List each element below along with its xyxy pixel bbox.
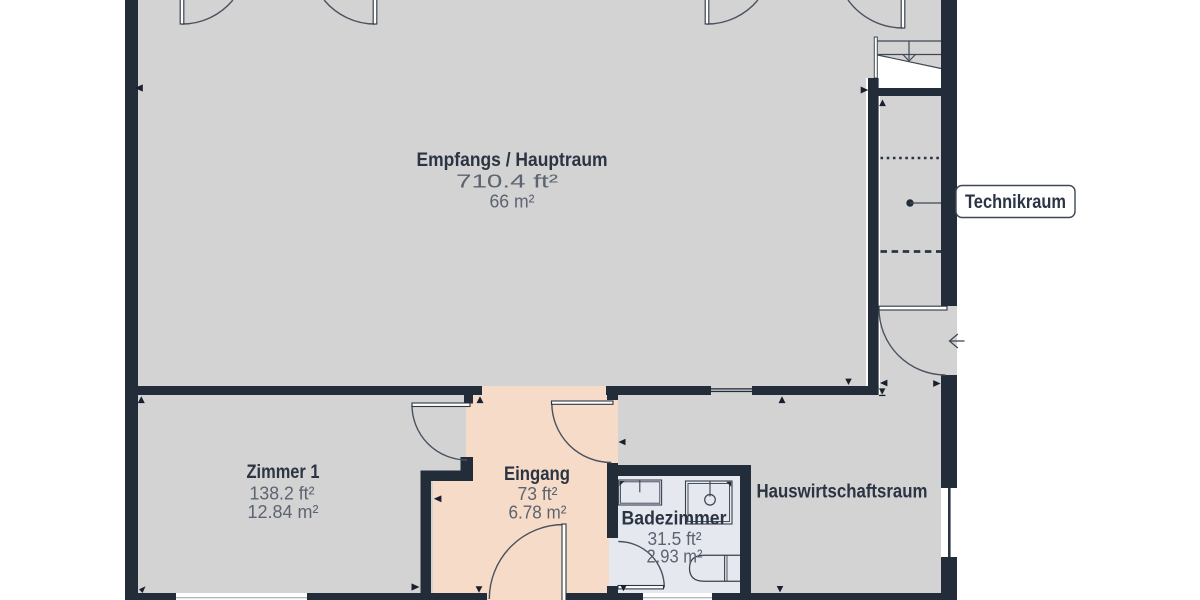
- svg-text:Hauswirtschaftsraum: Hauswirtschaftsraum: [757, 481, 928, 503]
- svg-text:2.93 m²: 2.93 m²: [647, 546, 703, 567]
- svg-text:Technikraum: Technikraum: [965, 192, 1066, 213]
- svg-text:Eingang: Eingang: [504, 463, 570, 485]
- svg-text:Empfangs / Hauptraum: Empfangs / Hauptraum: [417, 149, 608, 171]
- svg-text:6.78 m²: 6.78 m²: [509, 502, 567, 523]
- svg-text:710.4 ft²: 710.4 ft²: [456, 171, 558, 192]
- svg-text:Zimmer 1: Zimmer 1: [247, 461, 320, 483]
- svg-text:66 m²: 66 m²: [490, 191, 535, 212]
- svg-text:12.84 m²: 12.84 m²: [248, 501, 319, 522]
- svg-text:Badezimmer: Badezimmer: [622, 508, 727, 530]
